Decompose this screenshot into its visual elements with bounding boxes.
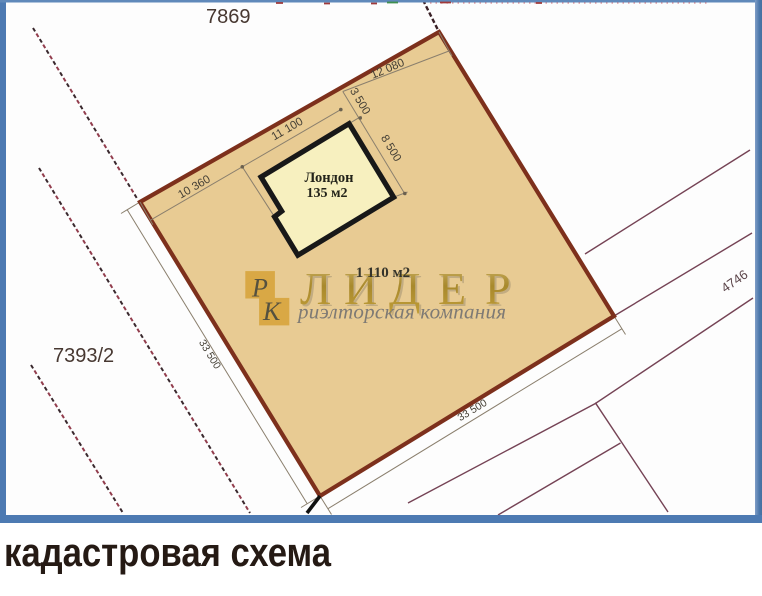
svg-text:1 110 м2: 1 110 м2 (356, 265, 410, 281)
svg-text:7869: 7869 (206, 6, 251, 28)
svg-text:7393/2: 7393/2 (53, 345, 114, 367)
svg-text:135 м2: 135 м2 (306, 186, 347, 201)
svg-text:кадастровая схема: кадастровая схема (4, 531, 332, 575)
svg-text:риэлторская компания: риэлторская компания (296, 300, 506, 324)
svg-text:Лондон: Лондон (305, 170, 354, 186)
svg-text:К: К (262, 297, 282, 326)
